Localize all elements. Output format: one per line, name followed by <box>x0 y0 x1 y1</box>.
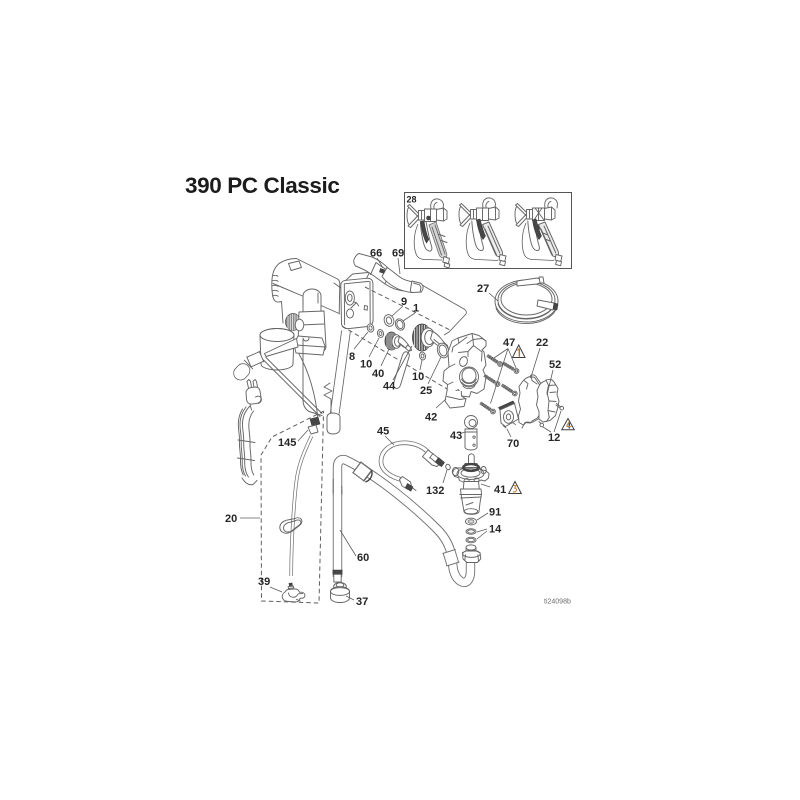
svg-text:ti24098b: ti24098b <box>544 599 571 606</box>
svg-text:47: 47 <box>503 337 515 349</box>
svg-text:37: 37 <box>356 596 368 608</box>
svg-text:14: 14 <box>489 524 502 536</box>
svg-text:66: 66 <box>370 248 382 260</box>
svg-text:28: 28 <box>407 195 417 205</box>
svg-text:27: 27 <box>477 283 489 295</box>
svg-text:40: 40 <box>372 368 384 380</box>
svg-text:20: 20 <box>225 513 237 525</box>
svg-text:60: 60 <box>357 552 369 564</box>
svg-text:9: 9 <box>401 296 407 308</box>
svg-text:1: 1 <box>413 303 419 315</box>
svg-text:25: 25 <box>420 385 432 397</box>
svg-text:22: 22 <box>536 337 548 349</box>
svg-text:45: 45 <box>377 426 389 438</box>
svg-text:10: 10 <box>412 371 424 383</box>
svg-text:12: 12 <box>548 432 560 444</box>
svg-text:39: 39 <box>258 576 270 588</box>
svg-text:8: 8 <box>349 351 355 363</box>
svg-text:41: 41 <box>494 484 506 496</box>
svg-text:44: 44 <box>383 381 396 393</box>
svg-text:132: 132 <box>426 485 444 497</box>
svg-text:10: 10 <box>360 359 372 371</box>
svg-text:91: 91 <box>489 507 501 519</box>
svg-text:42: 42 <box>425 412 437 424</box>
svg-text:70: 70 <box>507 438 519 450</box>
svg-text:43: 43 <box>450 430 462 442</box>
svg-text:52: 52 <box>549 359 561 371</box>
svg-text:69: 69 <box>392 248 404 260</box>
svg-text:145: 145 <box>278 437 296 449</box>
